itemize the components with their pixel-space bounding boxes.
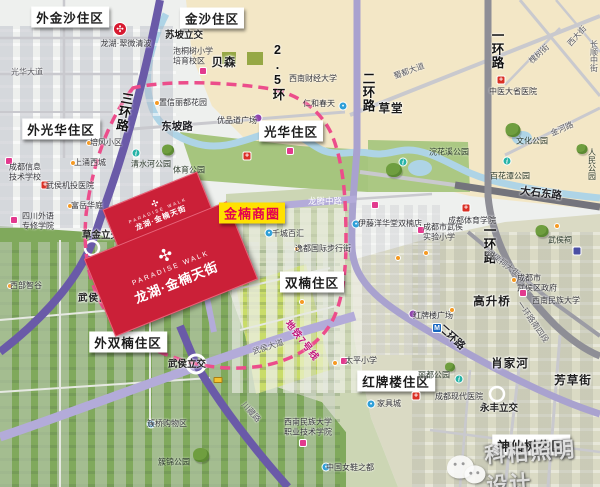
poi-label: 成都市武侯实验小学: [423, 222, 463, 241]
road-label: 一环路: [488, 29, 507, 70]
road-label: 武侯大道: [251, 337, 285, 357]
poi-label: 四川外语专修学院: [22, 211, 54, 230]
road-label: 槐树街: [526, 42, 551, 66]
poi-label: 中国女鞋之都: [326, 463, 374, 473]
museum-icon[interactable]: [573, 247, 582, 256]
road-label: 龙腾中路: [308, 195, 342, 207]
info-icon[interactable]: i: [503, 157, 512, 166]
shopping-icon[interactable]: •: [367, 400, 376, 409]
park-label: 浣花溪公园: [429, 147, 469, 158]
jinnan-business-circle-badge: 金楠商圈: [219, 203, 285, 224]
poi-label: 富岳华庭: [71, 201, 103, 211]
park-label: 武侯祠: [548, 235, 572, 246]
info-icon[interactable]: i: [399, 158, 408, 167]
district-label: 外双楠住区: [89, 332, 167, 353]
poi-label: 仁和春天: [303, 99, 335, 109]
district-label: 神仙树住区: [492, 435, 570, 456]
hospital-icon[interactable]: +: [462, 204, 471, 213]
longfor-icon[interactable]: ✣: [113, 22, 127, 36]
school-icon[interactable]: [371, 201, 379, 209]
poi-label: 逸都国际步行街: [295, 244, 351, 254]
zone-label: 贝森: [212, 54, 237, 70]
community-icon[interactable]: [332, 360, 338, 366]
hospital-icon[interactable]: +: [412, 392, 421, 401]
district-label: 外光华住区: [22, 119, 100, 140]
poi-label: 西南民族大学职业技术学院: [284, 417, 332, 436]
zone-label: 芳草街: [554, 372, 592, 388]
road-label: 三环路: [111, 90, 137, 133]
community-icon[interactable]: [449, 307, 455, 313]
hospital-icon[interactable]: +: [497, 76, 506, 85]
tree-icon: [162, 145, 174, 156]
road-label: 光华大道: [11, 67, 43, 78]
bus-icon[interactable]: [214, 377, 223, 383]
poi-label: 中医大省医院: [489, 87, 537, 97]
junction-label: 永丰立交: [480, 400, 518, 414]
poi-label: 伊藤洋华堂双楠店: [358, 219, 422, 229]
poi-label: 千城百汇: [272, 229, 304, 239]
zone-label: 肖家河: [491, 355, 529, 371]
hospital-icon[interactable]: +: [243, 152, 252, 161]
poi-label: 上涌西城: [74, 158, 106, 168]
zone-label: 草堂: [379, 100, 404, 116]
park-label: 人民公园: [587, 148, 598, 180]
info-icon[interactable]: i: [132, 149, 141, 158]
community-icon[interactable]: [423, 250, 429, 256]
road-label: 二环路: [359, 72, 378, 113]
poi-label: 泡桐树小学培育校区: [173, 46, 213, 65]
info-icon[interactable]: i: [455, 375, 464, 384]
poi-label: 武侯机投医院: [46, 181, 94, 191]
community-icon[interactable]: [554, 223, 560, 229]
school-icon[interactable]: [299, 439, 307, 447]
park-label: 百花潭公园: [490, 171, 530, 182]
poi-label: 西南财经大学: [289, 74, 337, 84]
poi-label: 成都现代医院: [435, 392, 483, 402]
school-icon[interactable]: [199, 67, 207, 75]
labels-layer: 外金沙住区金沙住区外光华住区光华住区双楠住区外双楠住区红牌楼住区神仙树住区草堂贝…: [0, 0, 600, 487]
junction-label: 武侯立交: [168, 356, 206, 370]
road-label: 一环路南四段: [515, 299, 552, 345]
poi-label: 龙湖·翠微清波: [101, 39, 152, 49]
poi-label: 太平小学: [345, 356, 377, 366]
park-label: 丽都公园: [418, 370, 450, 381]
road-label: 蜀都大道: [392, 60, 426, 81]
district-label: 光华住区: [259, 121, 323, 142]
poi-label: 家具城: [377, 399, 401, 409]
metro-icon[interactable]: M: [432, 323, 442, 333]
poi-label: 优品道广场: [217, 116, 257, 126]
district-label: 金沙住区: [180, 8, 244, 29]
park-label: 清水河公园: [131, 159, 171, 170]
school-icon[interactable]: [519, 289, 527, 297]
poi-label: 培风小区: [90, 138, 122, 148]
tree-icon: [193, 448, 209, 462]
road-label: 长顺中街: [589, 40, 600, 72]
road-label: 金河路: [549, 119, 575, 139]
district-label: 外金沙住区: [31, 7, 109, 28]
park-label: 簇锦公园: [158, 457, 190, 468]
district-label: 双楠住区: [280, 272, 344, 293]
community-icon[interactable]: [395, 255, 401, 261]
zone-label: 高升桥: [473, 293, 511, 309]
shopping-icon[interactable]: •: [339, 102, 348, 111]
metro-line-label: 地铁7号线: [283, 317, 324, 364]
poi-label: 西南民族大学: [532, 296, 580, 306]
road-label: 东坡路: [161, 119, 193, 134]
junction-label: 苏坡立交: [165, 27, 203, 41]
community-icon[interactable]: [299, 299, 305, 305]
poi-label: 簇桥购物区: [147, 419, 187, 429]
poi-label: 西部智谷: [10, 281, 42, 291]
road-label: 西大街: [565, 23, 589, 48]
road-label: 川藏路: [239, 399, 263, 424]
road-label: 大石东路: [519, 183, 563, 203]
poi-label: 成都信息技术学校: [9, 162, 41, 181]
poi-label: 置信丽都花园: [159, 98, 207, 108]
road-label: 2.5环: [269, 43, 288, 102]
park-label: 文化公园: [516, 136, 548, 147]
map-canvas[interactable]: 外金沙住区金沙住区外光华住区光华住区双楠住区外双楠住区红牌楼住区神仙树住区草堂贝…: [0, 0, 600, 487]
school-icon[interactable]: [10, 216, 18, 224]
poi-label: 红牌楼广场: [413, 311, 453, 321]
tree-icon: [536, 225, 549, 237]
school-icon[interactable]: [286, 147, 294, 155]
